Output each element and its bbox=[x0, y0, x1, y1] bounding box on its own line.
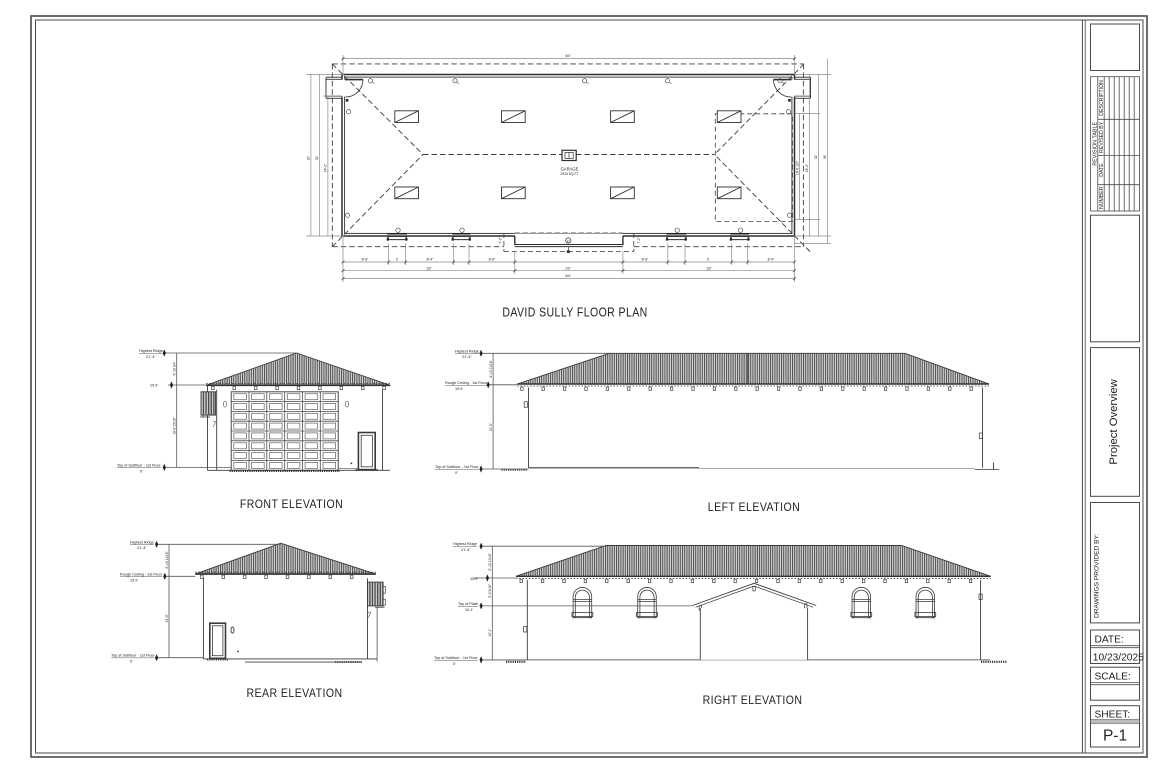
svg-text:7'-2": 7'-2" bbox=[499, 236, 503, 243]
svg-text:8'-6": 8'-6" bbox=[642, 258, 650, 262]
svg-text:3': 3' bbox=[707, 258, 710, 262]
svg-text:15'-9": 15'-9" bbox=[489, 422, 493, 431]
svg-text:DESCRIPTION: DESCRIPTION bbox=[1099, 80, 1105, 116]
svg-text:24'-2": 24'-2" bbox=[324, 163, 328, 172]
svg-text:21'-4": 21'-4" bbox=[137, 546, 147, 550]
svg-text:Top of Subfloor - 1st Floor: Top of Subfloor - 1st Floor bbox=[435, 465, 479, 469]
svg-text:5'-9 5/16": 5'-9 5/16" bbox=[488, 583, 492, 598]
svg-text:REAR ELEVATION: REAR ELEVATION bbox=[246, 687, 342, 700]
svg-text:15'-9": 15'-9" bbox=[165, 613, 169, 622]
svg-text:LEFT ELEVATION: LEFT ELEVATION bbox=[708, 501, 800, 514]
svg-text:10'-1": 10'-1" bbox=[488, 627, 492, 636]
svg-text:24'-2": 24'-2" bbox=[805, 163, 809, 172]
svg-text:10/23/2025: 10/23/2025 bbox=[1093, 653, 1144, 664]
svg-text:15.9': 15.9' bbox=[130, 578, 138, 582]
svg-text:SCALE:: SCALE: bbox=[1095, 672, 1131, 683]
svg-text:0': 0' bbox=[140, 469, 143, 473]
svg-text:7'-2": 7'-2" bbox=[637, 236, 641, 243]
svg-text:20': 20' bbox=[565, 265, 570, 270]
svg-text:0': 0' bbox=[453, 662, 456, 666]
svg-text:DAVID SULLY FLOOR PLAN: DAVID SULLY FLOOR PLAN bbox=[502, 304, 647, 319]
svg-text:FRONT ELEVATION: FRONT ELEVATION bbox=[240, 498, 343, 511]
svg-text:21'-4": 21'-4" bbox=[462, 355, 472, 359]
svg-text:REVISION TABLE: REVISION TABLE bbox=[1093, 121, 1099, 165]
svg-text:8'-10 11/16": 8'-10 11/16" bbox=[489, 359, 493, 377]
svg-text:0': 0' bbox=[455, 471, 458, 475]
svg-text:Highest Ridge: Highest Ridge bbox=[453, 542, 477, 546]
svg-text:9'-10 3/4": 9'-10 3/4" bbox=[173, 361, 177, 376]
svg-text:8'-10 11/16": 8'-10 11/16" bbox=[165, 550, 169, 568]
svg-text:32': 32' bbox=[814, 154, 818, 159]
svg-text:Project Overview: Project Overview bbox=[1108, 378, 1120, 464]
svg-text:Rough Ceiling - 1st Floor: Rough Ceiling - 1st Floor bbox=[445, 381, 488, 385]
svg-text:0': 0' bbox=[130, 660, 133, 664]
svg-text:84': 84' bbox=[565, 273, 570, 278]
svg-text:15.9': 15.9' bbox=[150, 384, 158, 388]
svg-text:Top of Subfloor - 1st Floor: Top of Subfloor - 1st Floor bbox=[111, 654, 155, 658]
svg-text:10.1': 10.1' bbox=[465, 608, 473, 612]
svg-text:32': 32' bbox=[706, 265, 711, 270]
svg-text:8'-6": 8'-6" bbox=[489, 258, 497, 262]
svg-text:19'-8 15/16": 19'-8 15/16" bbox=[173, 416, 177, 434]
svg-text:Highest Ridge: Highest Ridge bbox=[455, 349, 479, 353]
svg-text:32': 32' bbox=[426, 265, 431, 270]
svg-text:21'-4": 21'-4" bbox=[461, 548, 471, 552]
svg-text:Top of Subfloor - 1st Floor: Top of Subfloor - 1st Floor bbox=[117, 463, 161, 467]
svg-text:21'-4": 21'-4" bbox=[146, 355, 156, 359]
svg-text:Rough Ceiling - 1st Floor: Rough Ceiling - 1st Floor bbox=[120, 573, 163, 577]
svg-text:SHEET:: SHEET: bbox=[1095, 709, 1131, 720]
svg-text:15.9': 15.9' bbox=[455, 387, 463, 391]
svg-text:16'-6 1/2": 16'-6 1/2" bbox=[796, 160, 800, 175]
svg-text:8'-4": 8'-4" bbox=[768, 258, 776, 262]
svg-text:8'-10 11/16": 8'-10 11/16" bbox=[488, 552, 492, 570]
svg-text:P-1: P-1 bbox=[1103, 728, 1127, 745]
svg-text:30': 30' bbox=[307, 155, 311, 160]
svg-text:Top of Plate: Top of Plate bbox=[458, 602, 478, 606]
svg-text:Highest Ridge: Highest Ridge bbox=[139, 349, 163, 353]
svg-text:8'-4": 8'-4" bbox=[427, 258, 435, 262]
svg-text:32': 32' bbox=[315, 155, 319, 160]
svg-text:DATE: DATE bbox=[1099, 163, 1105, 177]
svg-text:DATE:: DATE: bbox=[1095, 634, 1124, 645]
svg-text:Highest Ridge: Highest Ridge bbox=[130, 540, 154, 544]
svg-text:GARAGE: GARAGE bbox=[561, 167, 579, 172]
svg-text:NUMBER: NUMBER bbox=[1099, 186, 1105, 209]
svg-text:2916 SQ FT: 2916 SQ FT bbox=[561, 172, 579, 176]
svg-text:REVISED BY: REVISED BY bbox=[1099, 121, 1105, 153]
svg-text:8'-6": 8'-6" bbox=[362, 258, 370, 262]
svg-text:Top of Subfloor - 1st Floor: Top of Subfloor - 1st Floor bbox=[434, 656, 478, 660]
svg-text:15.9': 15.9' bbox=[470, 577, 478, 581]
svg-text:36': 36' bbox=[823, 154, 827, 159]
svg-text:84': 84' bbox=[565, 53, 570, 58]
svg-text:RIGHT ELEVATION: RIGHT ELEVATION bbox=[703, 694, 803, 707]
svg-text:3': 3' bbox=[396, 258, 399, 262]
svg-text:DRAWINGS PROVIDED BY:: DRAWINGS PROVIDED BY: bbox=[1094, 533, 1101, 618]
